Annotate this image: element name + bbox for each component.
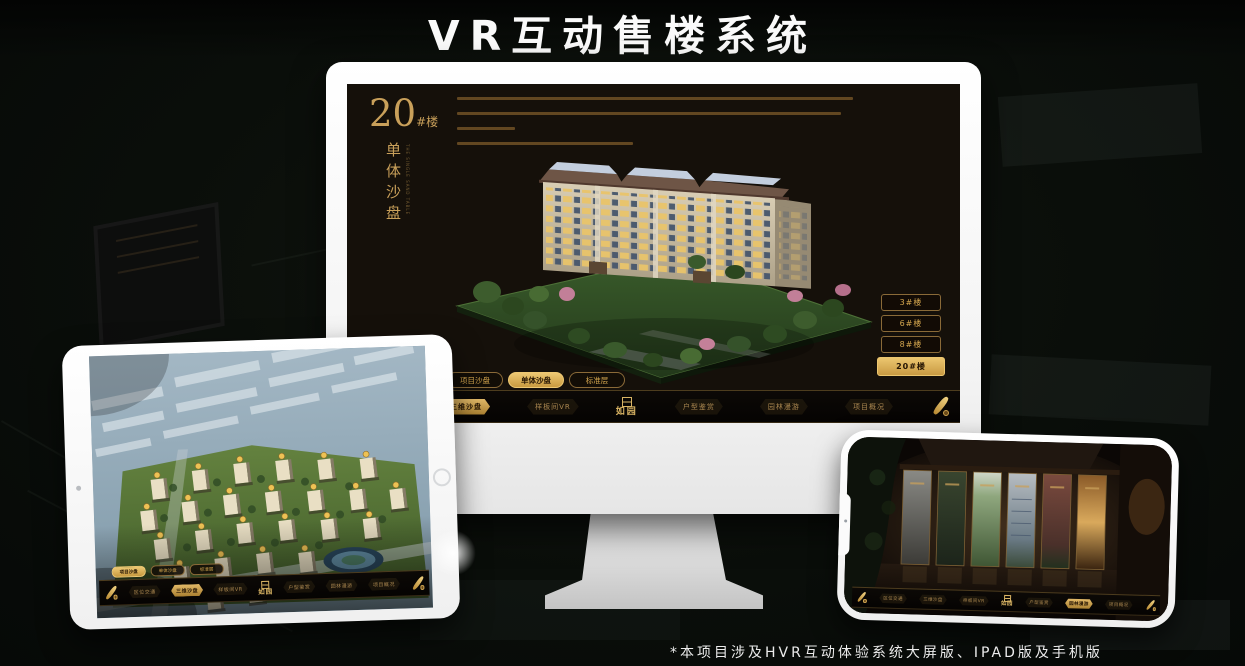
- nav-item-garden-roam[interactable]: 园林漫游: [1065, 598, 1093, 609]
- description-line: [457, 112, 841, 115]
- block-title: 20#楼: [369, 92, 438, 135]
- tablet-screen: 项目沙盘 单体沙盘 标准层 区位交通 三维沙盘 样板间VR 如园 户型鉴赏 园林…: [89, 346, 433, 618]
- tab-project-sandtable[interactable]: 项目沙盘: [447, 372, 503, 388]
- floor-button-6[interactable]: 6#楼: [881, 315, 941, 332]
- nav-item-overview[interactable]: 项目概况: [368, 578, 400, 591]
- floor-selector: 3#楼 6#楼 8#楼 20#楼: [877, 294, 945, 376]
- tab-single-sandtable[interactable]: 单体沙盘: [151, 564, 185, 576]
- nav-item-overview[interactable]: 项目概况: [845, 399, 893, 415]
- poster-stage: VR互动售楼系统 20#楼 单体沙盘 THE SINGLE SAND TABLE: [0, 0, 1245, 666]
- nav-item-floorplan[interactable]: 户型鉴赏: [283, 580, 315, 593]
- nav-item-floorplan[interactable]: 户型鉴赏: [675, 399, 723, 415]
- nav-item-showroom-vr[interactable]: 样板间VR: [959, 595, 989, 606]
- scroll-brush-icon[interactable]: [1145, 599, 1157, 611]
- floor-button-8[interactable]: 8#楼: [881, 336, 941, 353]
- tab-project-sandtable[interactable]: 项目沙盘: [112, 566, 146, 578]
- description-line: [457, 127, 515, 130]
- nav-item-showroom-vr[interactable]: 样板间VR: [213, 582, 248, 595]
- nav-item-location[interactable]: 区位交通: [879, 593, 907, 604]
- nav-item-overview[interactable]: 项目概况: [1105, 599, 1133, 610]
- background-aerial-block: [989, 354, 1212, 425]
- scroll-brush-icon[interactable]: [410, 575, 425, 590]
- page-title: VR互动售楼系统: [0, 2, 1245, 62]
- brand-logo: 如园: [258, 580, 273, 595]
- brand-name: 如园: [1001, 602, 1013, 608]
- view-tabs: 项目沙盘 单体沙盘 标准层: [447, 372, 625, 388]
- tab-standard-floor[interactable]: 标准层: [569, 372, 625, 388]
- nav-item-sandtable[interactable]: 三维沙盘: [919, 594, 947, 605]
- brand-name: 如园: [258, 588, 273, 595]
- scroll-brush-icon[interactable]: [930, 397, 950, 417]
- phone: 区位交通 三维沙盘 样板间VR 如园 户型鉴赏 园林漫游 项目概况: [836, 429, 1179, 628]
- background-aerial-block: [998, 83, 1202, 167]
- nav-item-garden-roam[interactable]: 园林漫游: [760, 399, 808, 415]
- block-number: 20: [369, 92, 416, 135]
- phone-notch: [838, 493, 851, 555]
- scroll-brush-icon[interactable]: [103, 585, 118, 600]
- description-line: [457, 97, 853, 100]
- background-plaque: [93, 202, 224, 350]
- phone-camera-dot: [844, 519, 847, 522]
- floor-button-3[interactable]: 3#楼: [881, 294, 941, 311]
- nav-item-showroom-vr[interactable]: 样板间VR: [527, 399, 579, 415]
- light-flare: [430, 530, 476, 576]
- footnote: *本项目涉及HVR互动体验系统大屏版、IPAD版及手机版: [670, 642, 1103, 662]
- nav-item-location[interactable]: 区位交通: [129, 585, 161, 598]
- brand-name: 如园: [616, 408, 638, 417]
- brand-logo: 如园: [1001, 595, 1013, 608]
- tablet: 项目沙盘 单体沙盘 标准层 区位交通 三维沙盘 样板间VR 如园 户型鉴赏 园林…: [62, 334, 461, 630]
- floor-button-20[interactable]: 20#楼: [877, 357, 945, 376]
- brand-logo: 如园: [616, 397, 638, 417]
- nav-item-floorplan[interactable]: 户型鉴赏: [1025, 597, 1053, 608]
- tab-single-sandtable[interactable]: 单体沙盘: [508, 372, 564, 388]
- block-subtitle: 单体沙盘: [383, 142, 404, 226]
- building-render: [439, 144, 879, 389]
- phone-screen: 区位交通 三维沙盘 样板间VR 如园 户型鉴赏 园林漫游 项目概况: [844, 437, 1173, 622]
- block-subtitle-en: THE SINGLE SAND TABLE: [405, 144, 410, 215]
- nav-item-garden-roam[interactable]: 园林漫游: [325, 579, 357, 592]
- tablet-home-button: [433, 468, 452, 487]
- monitor-stand: [545, 512, 763, 609]
- seal-icon: [622, 397, 632, 407]
- nav-item-sandtable[interactable]: 三维沙盘: [171, 584, 203, 597]
- scroll-brush-icon[interactable]: [855, 591, 867, 603]
- block-suffix: #楼: [416, 115, 438, 129]
- tablet-camera-dot: [76, 486, 81, 491]
- tab-standard-floor[interactable]: 标准层: [190, 563, 224, 575]
